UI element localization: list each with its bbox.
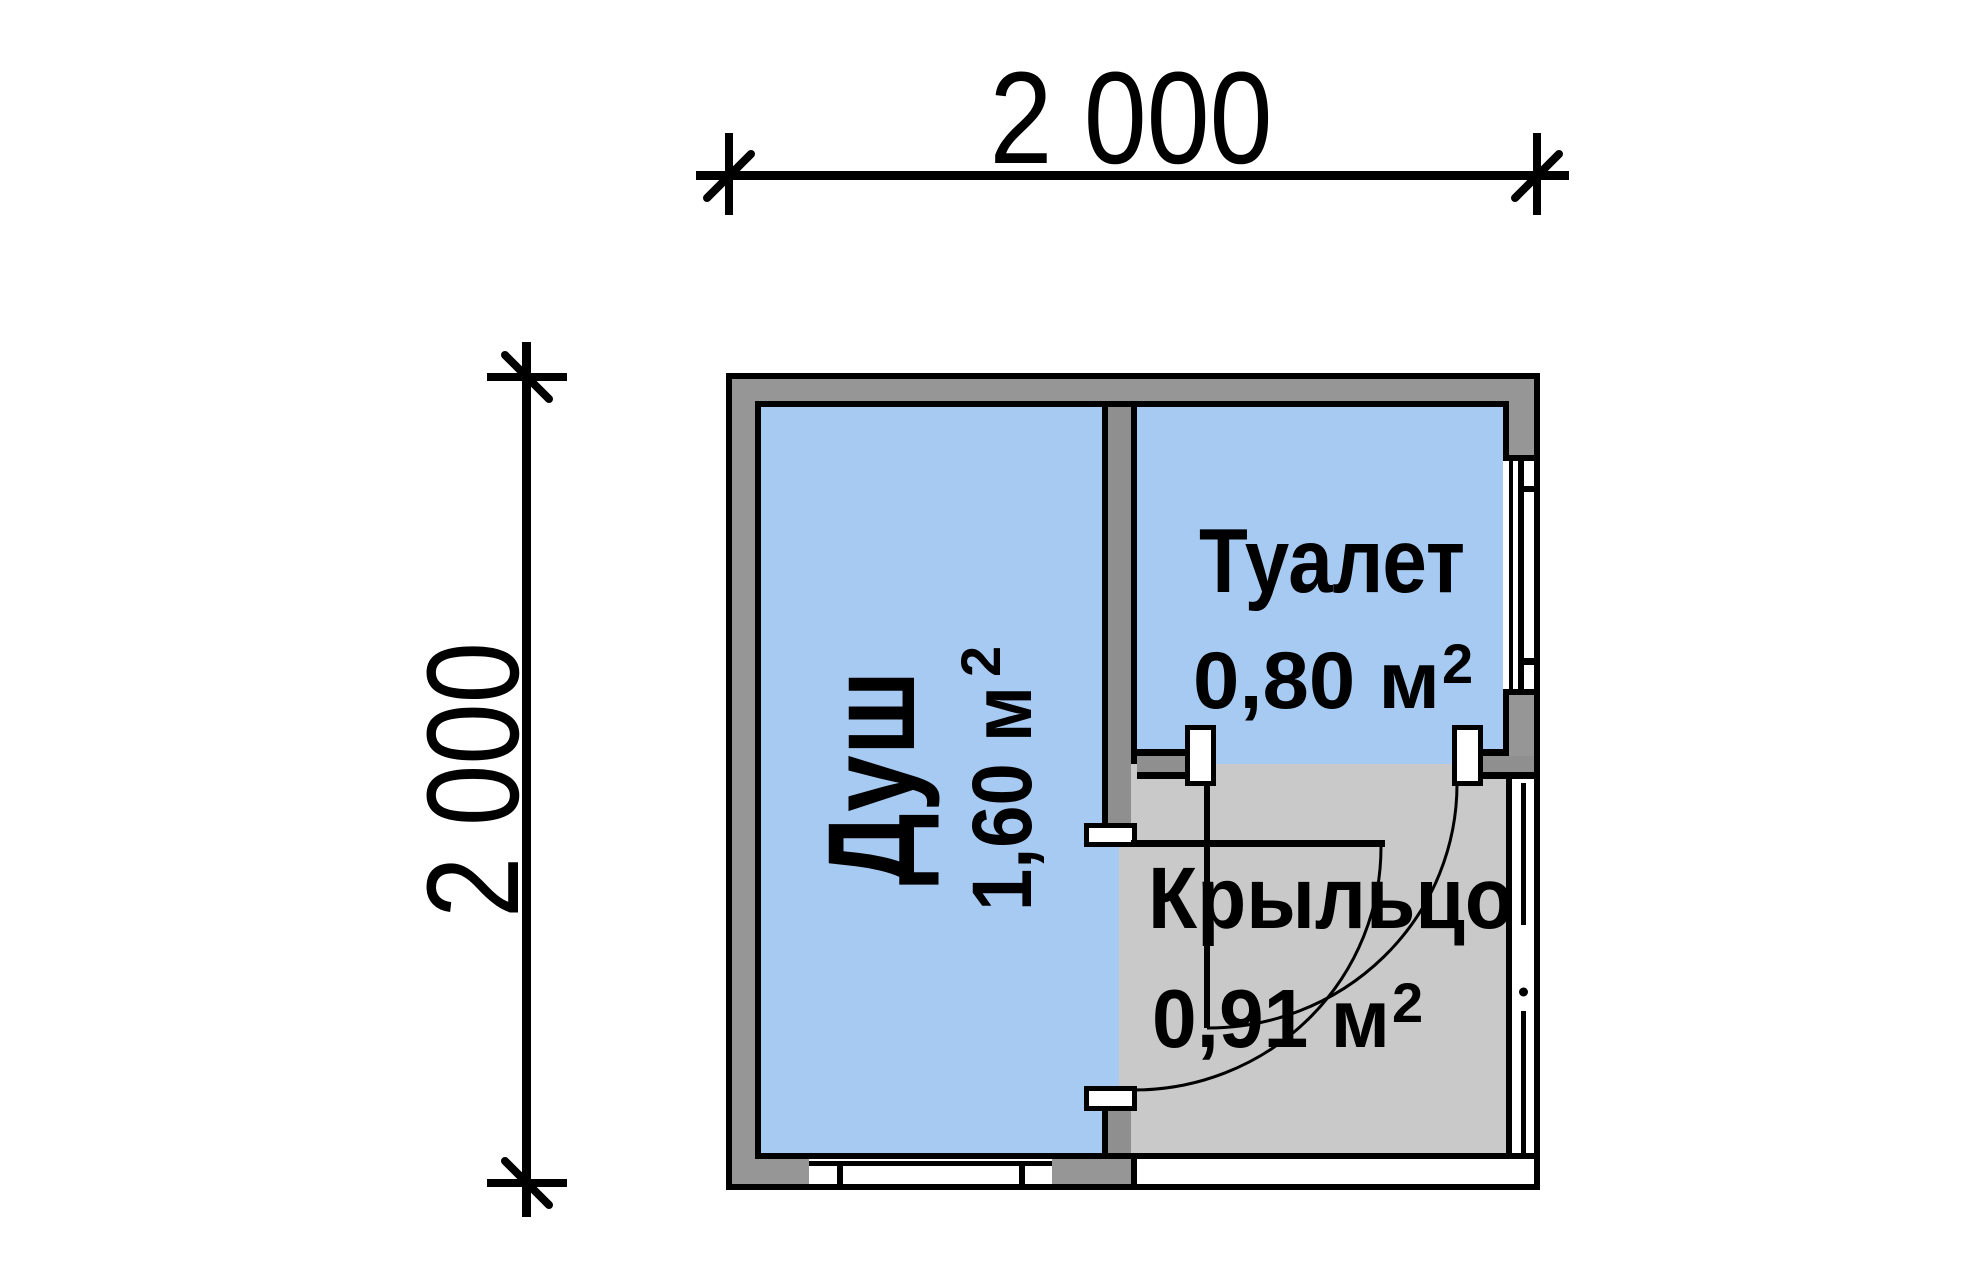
svg-text:2 000: 2 000 [399, 642, 546, 918]
svg-text:Крыльцо: Крыльцо [1148, 850, 1514, 947]
svg-text:2: 2 [1392, 971, 1423, 1034]
svg-text:Туалет: Туалет [1199, 511, 1465, 612]
svg-text:Душ: Душ [804, 671, 941, 886]
svg-text:2 000: 2 000 [990, 44, 1273, 191]
svg-text:0,91 м: 0,91 м [1152, 972, 1390, 1065]
svg-text:1,60 м: 1,60 м [955, 686, 1049, 911]
svg-text:2: 2 [1442, 632, 1473, 695]
svg-text:2: 2 [949, 646, 1012, 677]
svg-text:0,80 м: 0,80 м [1193, 636, 1440, 726]
